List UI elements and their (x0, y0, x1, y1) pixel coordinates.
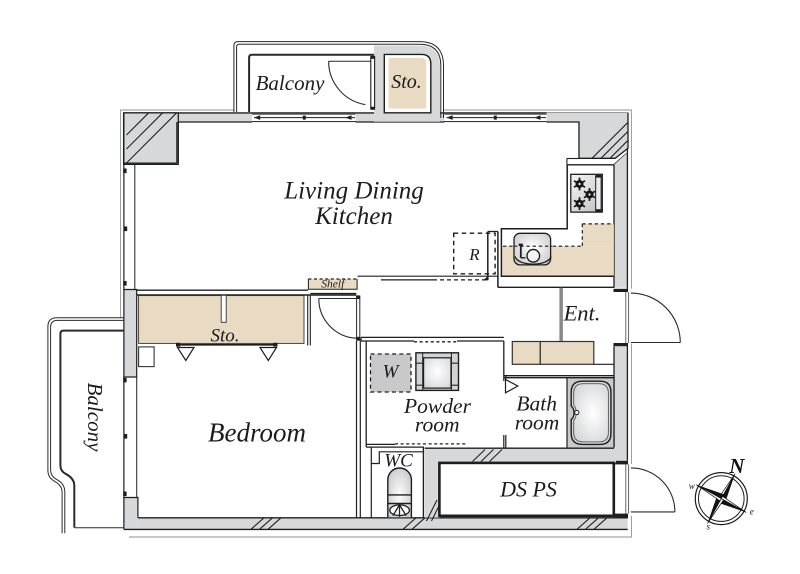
svg-text:e: e (750, 507, 754, 517)
svg-text:R: R (468, 245, 480, 264)
svg-text:Sto.: Sto. (391, 71, 422, 93)
svg-text:Bedroom: Bedroom (208, 418, 306, 448)
svg-text:Sto.: Sto. (210, 326, 239, 347)
svg-text:Shelf: Shelf (321, 279, 346, 291)
svg-text:room: room (515, 411, 560, 435)
svg-text:w: w (689, 481, 695, 491)
svg-text:Living Dining: Living Dining (283, 178, 424, 205)
svg-text:Ent.: Ent. (563, 301, 601, 326)
svg-text:s: s (707, 522, 711, 532)
svg-text:Kitchen: Kitchen (314, 203, 393, 230)
svg-text:W: W (383, 362, 401, 383)
svg-text:DS PS: DS PS (499, 477, 557, 502)
svg-text:room: room (415, 413, 460, 437)
svg-text:N: N (728, 454, 745, 478)
svg-text:Balcony: Balcony (256, 71, 325, 95)
svg-text:Balcony: Balcony (83, 383, 107, 452)
